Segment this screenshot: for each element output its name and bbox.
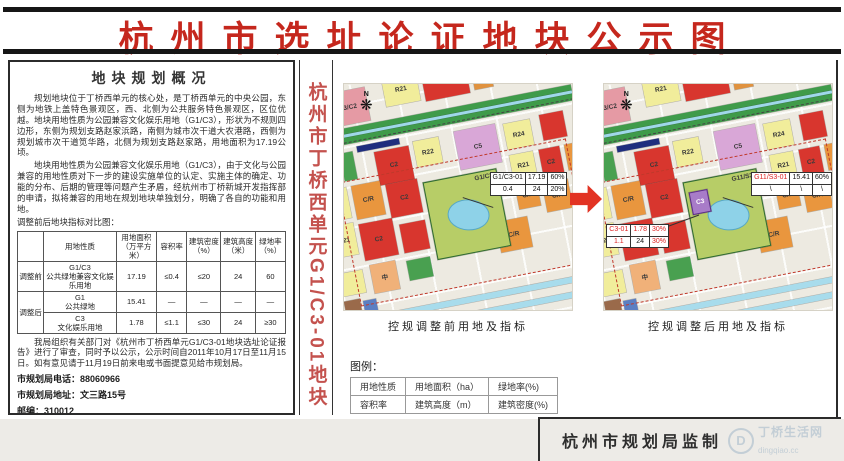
indicator-callout: G11/S3-0115.4160%\\\ [751,172,832,196]
legend-cell: 用地面积（ha） [406,378,489,396]
indicator-row: 调整前G1/C3 公共绿地兼容文化娱乐用地17.19≤0.4≤202460 [18,261,286,291]
indicator-cell: — [187,291,221,312]
overview-panel: 地块规划概况 规划地块位于丁桥西单元的核心处，是丁桥西单元的中央公园，东侧为地铁… [8,60,295,415]
callout-cell: 30% [649,225,668,237]
notice-paragraph: 我局组织有关部门对《杭州市丁桥西单元G1/C3-01地块选址论证报告》进行了审查… [17,337,286,370]
table-intro: 调整前后地块指标对比图： [17,217,286,228]
indicator-cell: 1.78 [116,312,156,333]
callout-cell: \ [790,184,813,196]
indicator-cell: ≤1.1 [157,312,187,333]
indicator-cell: — [255,291,285,312]
legend-title: 图例： [350,358,558,374]
indicator-header: 容积率 [157,231,187,261]
legend-cell: 建筑高度（m） [406,396,489,414]
callout-cell: 20% [548,184,567,196]
watermark-domain: dingqiao.cc [758,446,798,455]
legend: 图例： 用地性质用地面积（ha）绿地率(%)容积率建筑高度（m）建筑密度(%) [350,358,558,414]
indicator-header: 用地面积 （万平方米） [116,231,156,261]
title-underline-rule [3,49,841,54]
overview-paragraph-1: 规划地块位于丁桥西单元的核心处，是丁桥西单元的中央公园，东侧为地铁上盖特色景观区… [17,93,286,158]
map-after-adjustment: C3/C2R21C2C4C2R22C5R24R21C/RC2R21C2R21C2… [604,84,832,310]
indicator-cell: G1/C3 公共绿地兼容文化娱乐用地 [44,261,117,291]
indicator-group-cell: 调整前 [18,261,44,291]
indicator-cell: — [221,291,255,312]
indicator-table: 用地性质用地面积 （万平方米）容积率建筑密度 （%）建筑高度 （米）绿地率 （%… [17,231,286,334]
indicator-cell: 15.41 [116,291,156,312]
callout-cell: C3-01 [607,225,631,237]
footer-vertical-rule [538,417,540,461]
indicator-header: 绿地率 （%） [255,231,285,261]
callout-cell: G1/C3-01 [490,173,525,185]
indicator-callout: G1/C3-0117.1960%0.42420% [490,172,568,196]
page-title: 杭州市选址论证地块公示图 [0,11,844,62]
callout-cell: 60% [548,173,567,185]
indicator-callout: C3-011.7830%1.12430% [606,224,669,248]
map-parcel [799,110,827,140]
callout-cell: 17.19 [525,173,548,185]
postcode-line: 邮编：310012 [17,404,286,415]
producer-label: 杭州市规划局监制 [562,428,722,452]
indicator-cell: — [157,291,187,312]
map-rotated-layer: C3/C2R21C2C4C2R22C5R24R21C/RC2R21C2R21C2… [344,84,572,310]
legend-cell: 容积率 [351,396,406,414]
indicator-cell: ≥30 [255,312,285,333]
legend-cell: 绿地率(%) [489,378,558,396]
indicator-cell: ≤20 [187,261,221,291]
compass-north-icon: N❋ [620,91,633,113]
callout-cell: 1.78 [631,225,650,237]
address-line: 市规划局地址：文三路15号 [17,388,286,401]
compass-north-icon: N❋ [360,91,373,113]
indicator-cell: 17.19 [116,261,156,291]
phone-line: 市规划局电话：88060966 [17,372,286,385]
indicator-cell: ≤0.4 [157,261,187,291]
indicator-cell: ≤30 [187,312,221,333]
callout-cell: 15.41 [790,173,813,185]
indicator-group-cell: 调整后 [18,291,44,333]
watermark: D 丁桥生活网 dingqiao.cc [728,424,823,458]
indicator-row: C3 文化娱乐用地1.78≤1.1≤3024≥30 [18,312,286,333]
callout-cell: 24 [525,184,548,196]
callout-cell: G11/S3-01 [752,173,790,185]
indicator-header: 建筑密度 （%） [187,231,221,261]
indicator-cell: 60 [255,261,285,291]
indicator-cell: 24 [221,312,255,333]
legend-cell: 用地性质 [351,378,406,396]
right-rule [836,60,838,417]
arrow-right-icon [570,185,602,213]
overview-heading: 地块规划概况 [17,68,286,88]
map-parcel [539,110,567,140]
indicator-row: 调整后G1 公共绿地15.41———— [18,291,286,312]
overview-paragraph-2: 地块用地性质为公园兼容文化娱乐用地（G1/C3），由于文化与公园兼容的用地性质对… [17,160,286,214]
map-after-caption: 控规调整后用地及指标 [604,318,832,334]
callout-cell: 0.4 [490,184,525,196]
callout-cell: \ [812,184,831,196]
indicator-cell: C3 文化娱乐用地 [44,312,117,333]
callout-cell: \ [752,184,790,196]
callout-cell: 30% [649,236,668,248]
indicator-cell: 24 [221,261,255,291]
map-rotated-layer: C3/C2R21C2C4C2R22C5R24R21C/RC2R21C2R21C2… [604,84,832,310]
footer-rule [538,417,841,419]
indicator-header: 用地性质 [44,231,117,261]
plot-name-strip: 杭州市丁桥西单元G1/C3-01地块 [299,60,333,415]
indicator-cell: G1 公共绿地 [44,291,117,312]
watermark-sun-icon: D [728,428,754,454]
indicator-header: 建筑高度 （米） [221,231,255,261]
callout-cell: 24 [631,236,650,248]
legend-cell: 建筑密度(%) [489,396,558,414]
callout-cell: 1.1 [607,236,631,248]
plot-name-vertical-text: 杭州市丁桥西单元G1/C3-01地块 [303,82,330,408]
watermark-name: 丁桥生活网 [758,425,823,439]
callout-cell: 60% [812,173,831,185]
map-before-adjustment: C3/C2R21C2C4C2R22C5R24R21C/RC2R21C2R21C2… [344,84,572,310]
legend-table: 用地性质用地面积（ha）绿地率(%)容积率建筑高度（m）建筑密度(%) [350,377,558,414]
indicator-header [18,231,44,261]
map-before-caption: 控规调整前用地及指标 [344,318,572,334]
